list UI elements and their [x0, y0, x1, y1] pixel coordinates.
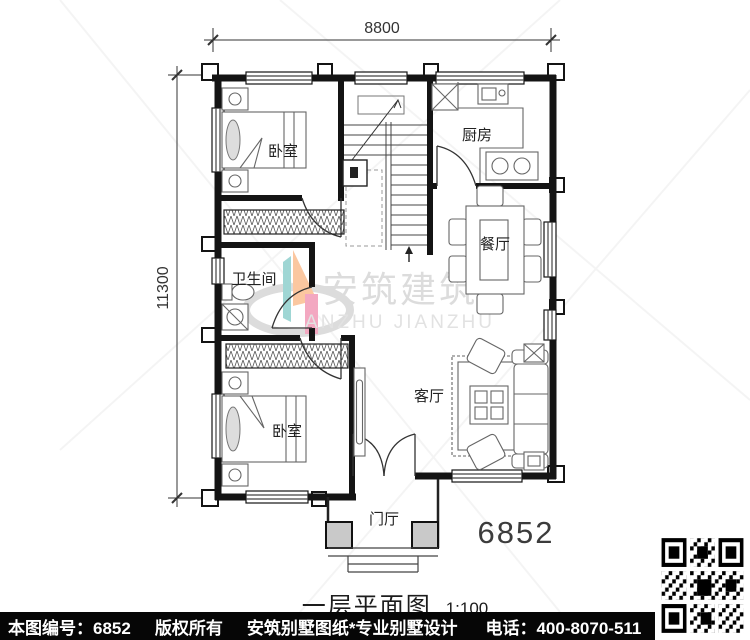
wardrobe — [226, 344, 348, 368]
logo-teal-shape-icon — [283, 256, 291, 322]
qr-code-pattern — [658, 534, 747, 637]
floor-plan-drawing: 安筑建筑 ANZHU JIANZHU 8800 11300 — [0, 0, 750, 612]
room-label-bathroom: 卫生间 — [231, 271, 276, 288]
porch-column — [326, 522, 352, 548]
room-label-bedroom-bottom: 卧室 — [272, 423, 302, 440]
qr-finder-icon — [662, 604, 687, 633]
dimension-height-value: 11300 — [155, 266, 172, 309]
room-label-kitchen: 厨房 — [462, 127, 492, 144]
qr-code — [655, 531, 750, 640]
nightstand — [222, 372, 248, 394]
room-label-dining: 餐厅 — [480, 236, 510, 253]
living-room-furniture — [354, 337, 548, 471]
staircase — [343, 96, 427, 262]
porch-column — [412, 522, 438, 548]
nightstand — [222, 464, 248, 486]
watermark-en: ANZHU JIANZHU — [305, 312, 495, 333]
floor-plan-page: 安筑建筑 ANZHU JIANZHU 8800 11300 — [0, 0, 750, 640]
room-label-foyer: 门厅 — [369, 511, 399, 528]
room-label-living: 客厅 — [414, 388, 444, 405]
room-label-bedroom-top: 卧室 — [268, 143, 298, 160]
side-table — [524, 452, 544, 470]
qr-finder-icon — [662, 538, 687, 567]
armchair — [466, 433, 506, 471]
footer-phone: 电话：400-8070-511 — [485, 614, 641, 639]
nightstand — [222, 88, 248, 110]
bedroom-top-furniture — [222, 88, 344, 234]
plan-number: 6852 — [478, 515, 555, 550]
footer-plan-number: 本图编号：6852 — [8, 614, 131, 639]
nightstand — [222, 170, 248, 192]
footer-bar: 本图编号：6852 版权所有 安筑别墅图纸*专业别墅设计 电话：400-8070… — [0, 612, 750, 640]
dimension-left: 11300 — [155, 66, 204, 507]
dimension-width-value: 8800 — [364, 20, 400, 37]
sofa — [514, 364, 548, 454]
footer-brand: 安筑别墅图纸*专业别墅设计 — [247, 614, 458, 639]
wardrobe — [224, 210, 344, 234]
qr-finder-icon — [719, 538, 744, 567]
armchair — [466, 337, 506, 375]
footer-copyright: 版权所有 — [155, 614, 223, 639]
bedroom-bottom-furniture — [222, 344, 348, 486]
tv-cabinet — [354, 368, 365, 456]
